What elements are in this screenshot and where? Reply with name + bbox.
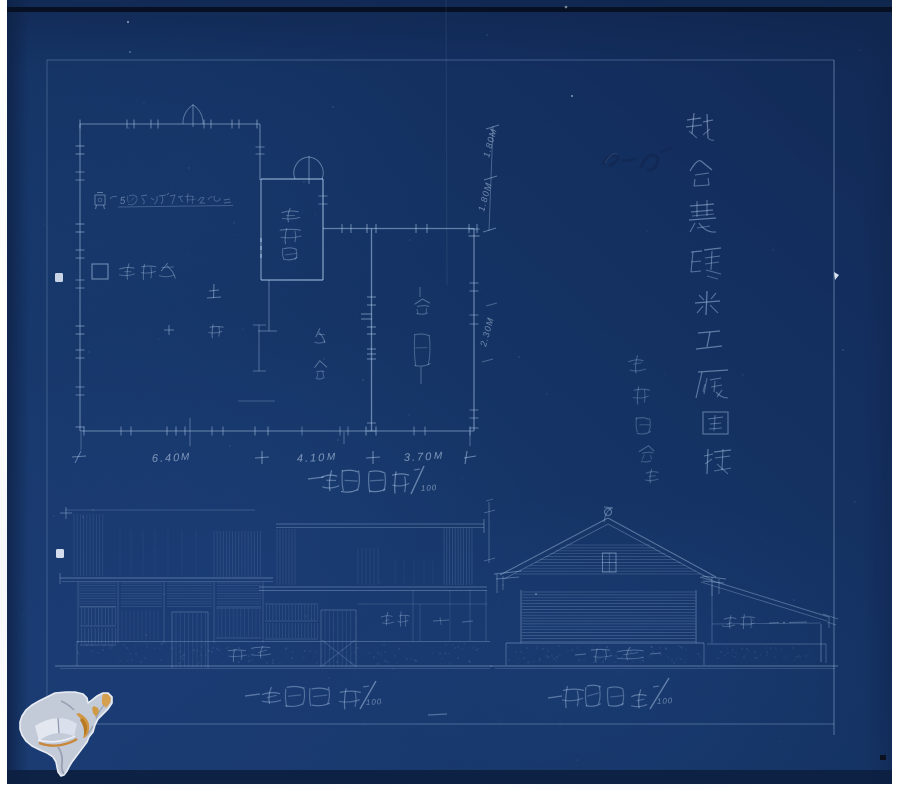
svg-text:3.70: 3.70: [404, 451, 434, 464]
svg-text:6.40: 6.40: [152, 452, 182, 465]
svg-text:100: 100: [366, 697, 383, 707]
svg-text:M: M: [181, 452, 190, 463]
svg-text:100: 100: [657, 696, 674, 706]
svg-text:4.10: 4.10: [297, 452, 327, 465]
svg-text:100: 100: [421, 483, 438, 493]
svg-text:M: M: [327, 452, 336, 463]
svg-text:M: M: [434, 451, 443, 462]
